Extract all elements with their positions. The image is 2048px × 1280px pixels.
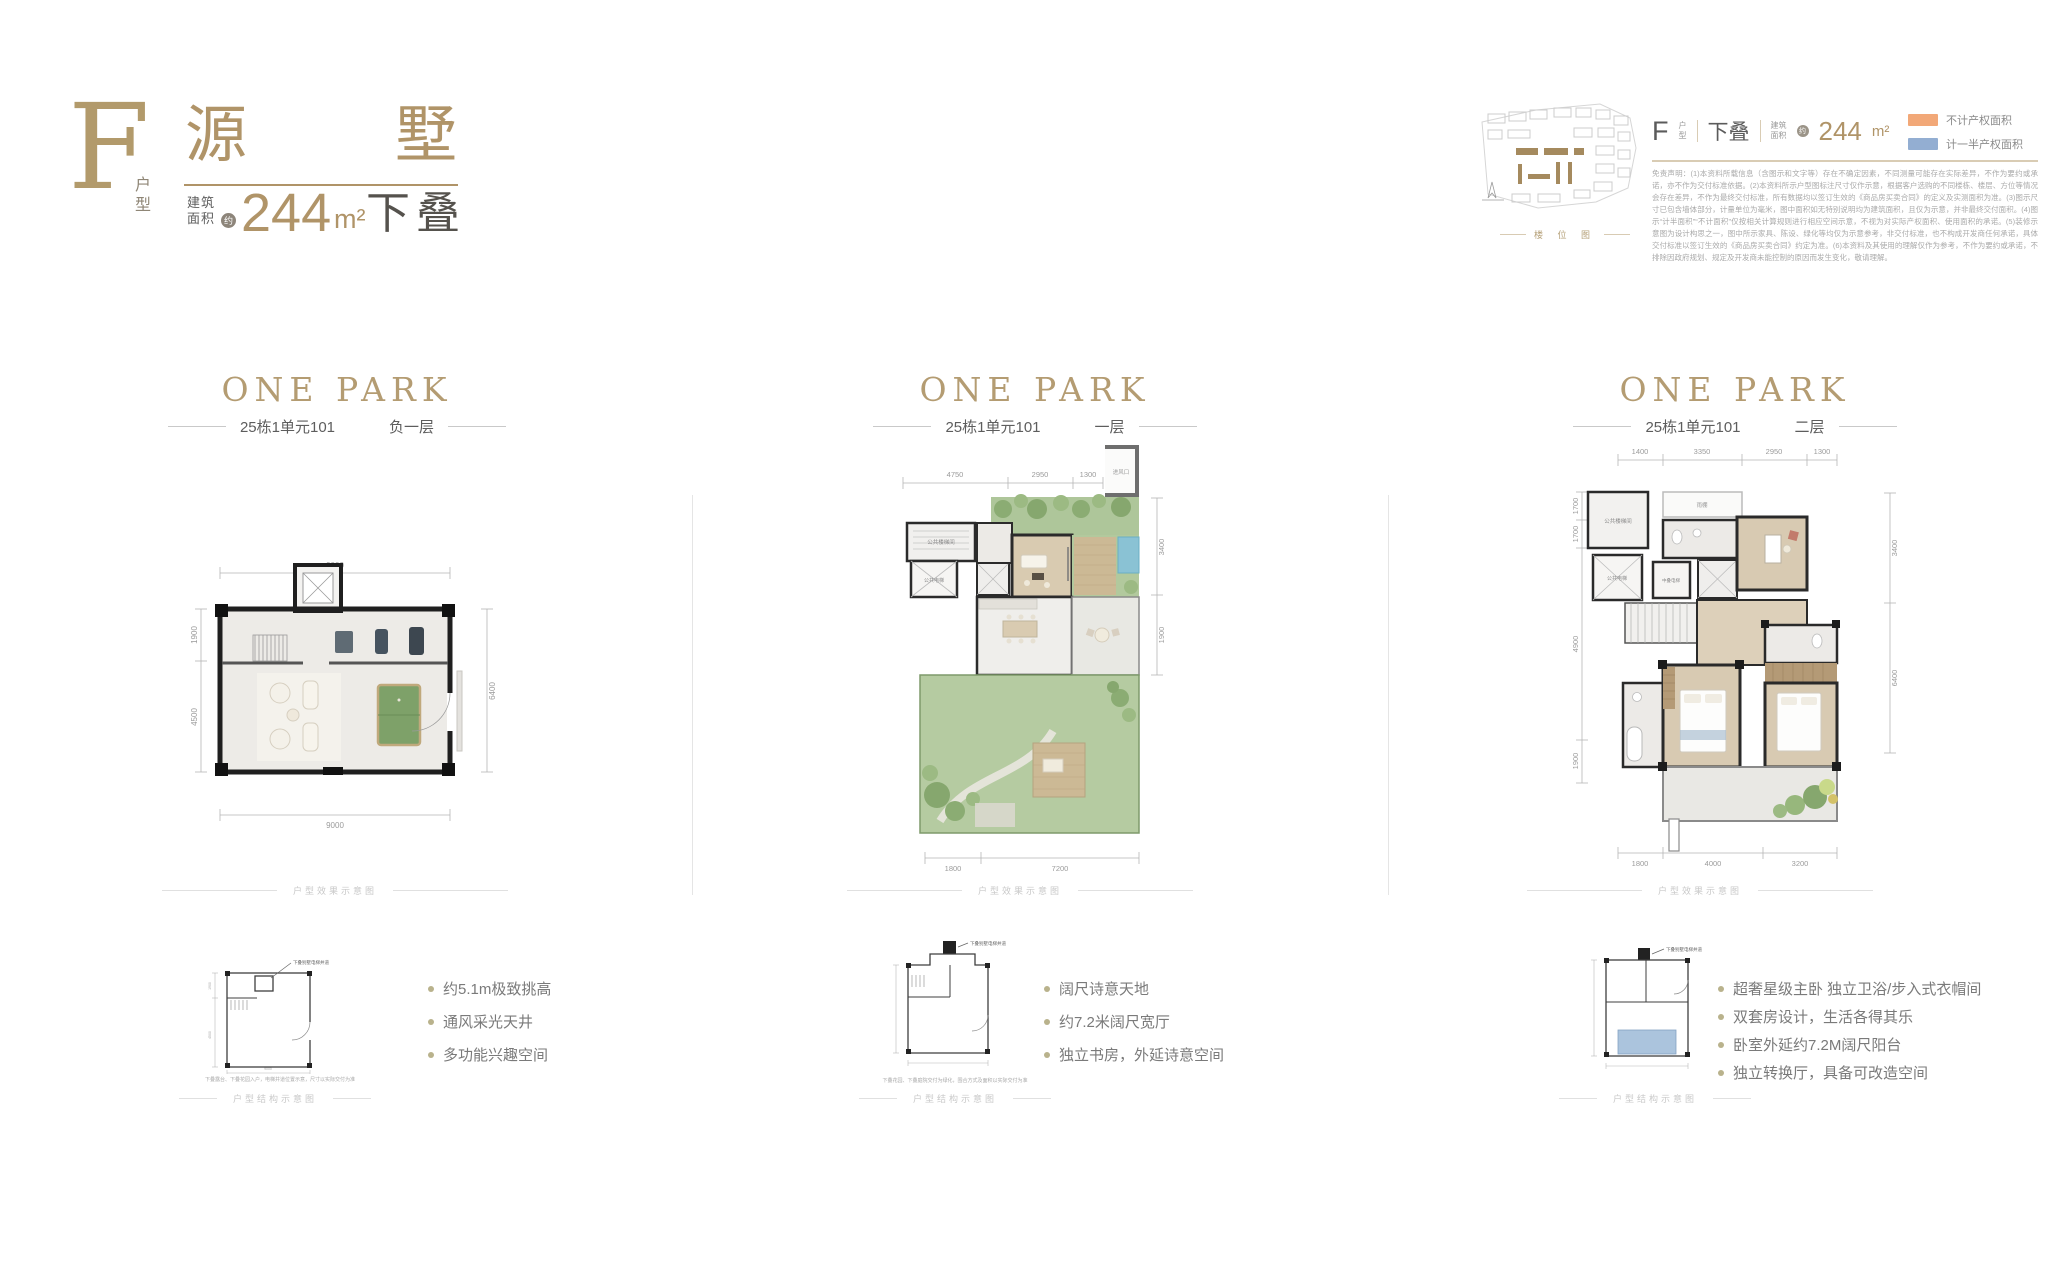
schematic-pointer-label: 下叠别墅电梯井道 [293,959,329,966]
schematic-note-2: 下叠花园、下叠庭院交付为绿化，围合方式及面积以实际交付为准 [865,1078,1045,1086]
svg-text:公共电梯: 公共电梯 [924,577,944,584]
kitchen-counter [979,599,1037,609]
elevator-well [1638,948,1650,960]
stack-type-label: 下叠 [366,192,466,236]
list-item: 双套房设计，生活各得其乐 [1718,1006,1981,1027]
dining-table [1003,621,1037,637]
schematic-caption-2: 户型结构示意图 [855,1092,1055,1105]
svg-text:1900: 1900 [1157,627,1166,644]
bullet-dot-icon [1044,1052,1050,1058]
wardrobe [1663,667,1675,709]
svg-text:进风口: 进风口 [1113,468,1130,476]
area-value: 244 [241,186,331,240]
lounge-chair [1043,759,1063,772]
bathtub [1627,727,1642,761]
list-item: 独立转换厅，具备可改造空间 [1718,1062,1981,1083]
list-item: 多功能兴趣空间 [428,1044,551,1065]
render-caption-1: 户型效果示意图 [135,884,535,897]
bullet-dot-icon [1718,1070,1724,1076]
elevator-well [255,976,273,991]
render-caption-2: 户型效果示意图 [820,884,1220,897]
sink [1693,529,1701,537]
desk [1765,535,1781,563]
svg-text:公共楼梯间: 公共楼梯间 [927,538,955,546]
exterior-stair [1669,819,1679,851]
divider [1697,120,1698,142]
svg-text:9000: 9000 [326,821,344,830]
billiard-table [378,685,420,745]
toilet [1672,530,1682,544]
svg-text:1800: 1800 [1632,859,1649,868]
divider [1760,120,1761,142]
area-legend: 不计产权面积 计一半产权面积 [1908,112,2023,160]
feature-list-2: 阔尺诗意天地 约7.2米阔尺宽厅 独立书房，外延诗意空间 [1044,978,1224,1077]
door-opening [447,693,454,731]
bullet-dot-icon [1718,1042,1724,1048]
svg-text:1900: 1900 [208,982,212,990]
bullet-dot-icon [428,1052,434,1058]
schematic-note-1: 下叠露台、下叠花园入户，电梯井道位置示意，尺寸以实际交付为准 [190,1077,370,1085]
svg-text:4000: 4000 [1705,859,1722,868]
svg-text:6400: 6400 [488,682,497,700]
svg-text:公共电梯: 公共电梯 [1607,575,1627,582]
approx-badge: 约 [221,213,236,228]
feature-list-1: 约5.1m极致挑高 通风采光天井 多功能兴趣空间 [428,978,551,1077]
info-stack-label: 下叠 [1708,116,1750,146]
site-plan-map [1478,98,1643,224]
svg-text:2950: 2950 [1766,447,1783,456]
bullet-dot-icon [428,1019,434,1025]
area-label: 建筑 面积 [187,195,215,228]
area-unit: m² [334,204,365,235]
unit-info-row: F 户型 下叠 建筑面积 约 244 m² [1652,116,1889,146]
list-item: 约5.1m极致挑高 [428,978,551,999]
disclaimer-text: 免责声明：(1)本资料所载信息（含图示和文字等）存在不确定因素，不同测量可能存在… [1652,168,2038,264]
floorplan-first-floor: 4750 2950 1300 3400 1900 1800 7200 进风口 公… [885,443,1175,918]
info-unit-letter: F [1652,118,1669,145]
svg-text:1300: 1300 [1080,470,1097,479]
legend-swatch-blue [1908,138,1938,150]
wood-deck [1074,537,1116,595]
unit-type-label: 户型 [128,176,152,216]
legend-swatch-orange [1908,114,1938,126]
list-item: 约7.2米阔尺宽厅 [1044,1011,1224,1032]
entry-hall [977,523,1012,563]
sofa [1021,555,1047,568]
svg-text:雨棚: 雨棚 [1696,501,1708,509]
shrub [1124,580,1138,594]
outdoor-table [1095,628,1109,642]
unit-subtitle-2: 25栋1单元101一层 [835,416,1235,437]
svg-text:中叠电梯: 中叠电梯 [1662,577,1680,584]
list-item: 阔尺诗意天地 [1044,978,1224,999]
render-caption-3: 户型效果示意图 [1500,884,1900,897]
svg-text:公共楼梯间: 公共楼梯间 [1604,517,1632,525]
svg-text:1900: 1900 [1571,753,1580,770]
pool [1118,537,1139,573]
closet-row [1765,663,1837,683]
floorplan-basement: 9000 9000 1900 4500 6400 [185,543,505,835]
svg-text:7200: 7200 [1052,864,1069,873]
svg-text:2950: 2950 [1032,470,1049,479]
info-area-unit: m² [1872,123,1890,140]
stone-terrace [975,803,1015,827]
feature-list-3: 超奢星级主卧 独立卫浴/步入式衣帽间 双套房设计，生活各得其乐 卧室外延约7.2… [1718,978,1981,1090]
bullet-dot-icon [428,986,434,992]
unit-subtitle-1: 25栋1单元101负一层 [137,416,537,437]
svg-text:4500: 4500 [208,1031,212,1039]
structure-schematic-2: 下叠别墅电梯井道 [880,935,1030,1075]
bullet-dot-icon [1044,986,1050,992]
structure-schematic-1: 1900 4500 9000 下叠别墅电梯井道 [205,950,355,1074]
schematic-pointer-label: 下叠别墅电梯井道 [1666,946,1702,953]
list-item: 卧室外延约7.2M阔尺阳台 [1718,1034,1981,1055]
bullet-dot-icon [1718,1014,1724,1020]
second-bathroom [1765,625,1837,663]
brochure-page: F 户型 源 墅 建筑 面积 约 244 m² 下叠 [0,0,2048,1280]
coffee-table [1032,573,1044,580]
info-area-label: 建筑面积 [1771,121,1787,140]
column-divider [1388,495,1389,895]
half-area-balcony [1618,1030,1676,1054]
schematic-pointer-label: 下叠别墅电梯井道 [970,940,1006,947]
svg-text:1700: 1700 [1571,526,1580,543]
svg-text:3350: 3350 [1694,447,1711,456]
stairs [1625,603,1697,643]
svg-text:4900: 4900 [1571,636,1580,653]
bullet-dot-icon [1718,986,1724,992]
legend-row-excluded: 不计产权面积 [1908,112,2023,128]
floorplan-second-floor: 1400 3350 2950 1300 1700 1700 4900 1900 … [1565,435,1965,875]
svg-text:4500: 4500 [190,708,199,726]
svg-text:3400: 3400 [1157,539,1166,556]
svg-text:1300: 1300 [1814,447,1831,456]
svg-text:1700: 1700 [1571,498,1580,515]
one-park-logo-2: ONE PARK [885,370,1185,409]
elevator-well [943,941,956,954]
svg-text:1400: 1400 [1632,447,1649,456]
unit-subtitle-3: 25栋1单元101二层 [1535,416,1935,437]
svg-text:4750: 4750 [947,470,964,479]
projection-screen [457,671,462,751]
list-item: 独立书房，外延诗意空间 [1044,1044,1224,1065]
info-approx-badge: 约 [1797,125,1809,137]
legend-row-half: 计一半产权面积 [1908,136,2023,152]
title-char-2: 墅 [395,104,457,166]
gym-equipment [335,627,424,655]
structure-schematic-3: 下叠别墅电梯井道 [1580,940,1730,1080]
info-unit-label: 户型 [1679,121,1687,140]
project-title: 源 墅 [185,104,457,166]
svg-text:1800: 1800 [945,864,962,873]
svg-text:3400: 3400 [1890,540,1899,557]
svg-text:1900: 1900 [190,626,199,644]
list-item: 通风采光天井 [428,1011,551,1032]
header-rule [1652,160,2038,162]
svg-text:6400: 6400 [1890,670,1899,687]
one-park-logo-1: ONE PARK [187,370,487,409]
schematic-caption-1: 户型结构示意图 [175,1092,375,1105]
bullet-dot-icon [1044,1019,1050,1025]
title-char-1: 源 [185,104,247,166]
svg-text:3200: 3200 [1792,859,1809,868]
one-park-logo-3: ONE PARK [1585,370,1885,409]
list-item: 超奢星级主卧 独立卫浴/步入式衣帽间 [1718,978,1981,999]
schematic-caption-3: 户型结构示意图 [1555,1092,1755,1105]
info-area-value: 244 [1819,118,1862,144]
column-divider [692,495,693,895]
site-plan-caption: 楼 位 图 [1500,228,1630,241]
